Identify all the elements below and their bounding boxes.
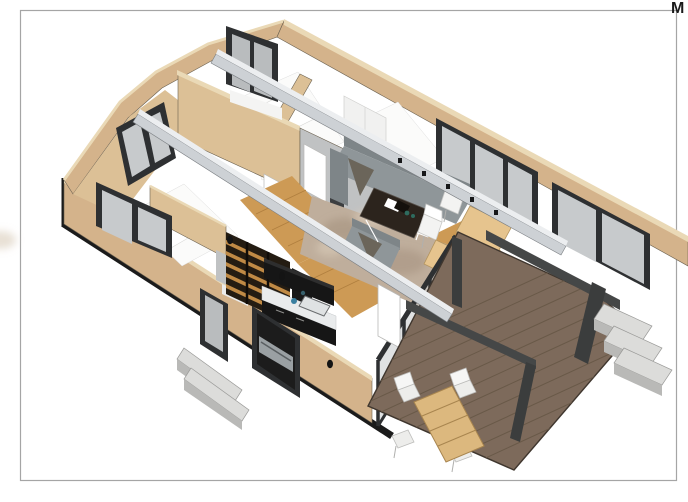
wall-vent: [279, 272, 285, 280]
wall-vent: [327, 360, 333, 368]
drawing-sheet-page: M: [0, 0, 688, 502]
floor-plan-rendering: M: [0, 0, 688, 502]
sheet-corner-label: M: [671, 0, 684, 17]
wall-vent: [227, 236, 233, 244]
cup: [411, 214, 415, 218]
kettle: [291, 298, 297, 304]
faucet: [301, 291, 305, 295]
pergola-post: [452, 236, 462, 308]
cup: [405, 211, 410, 216]
